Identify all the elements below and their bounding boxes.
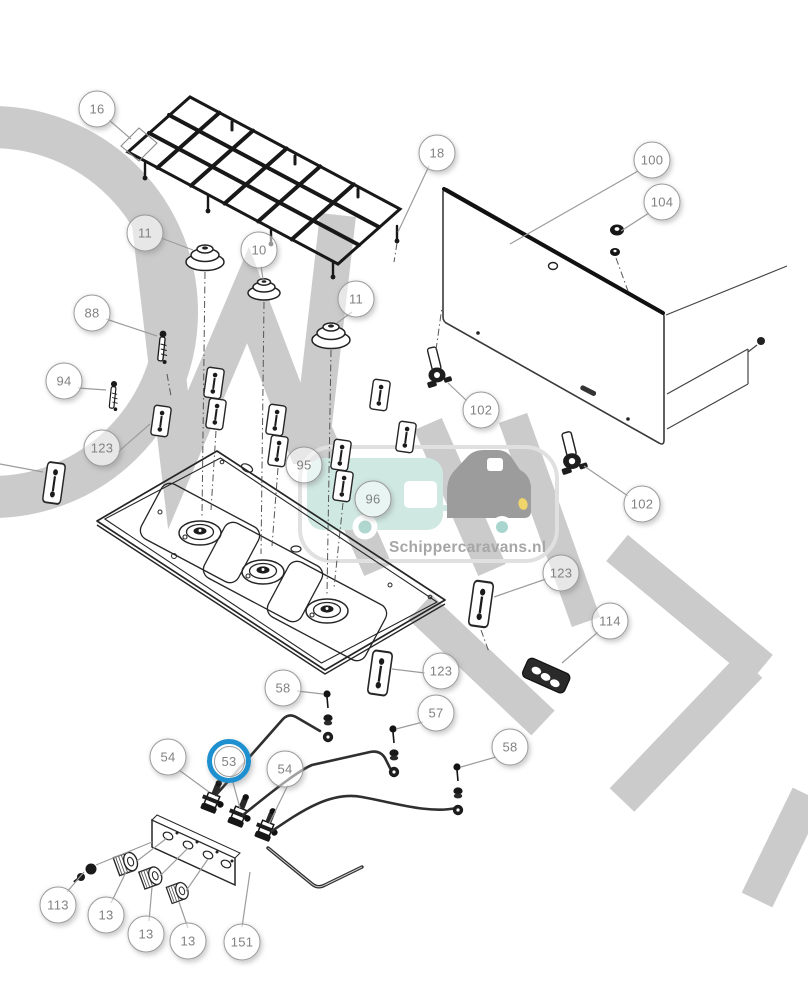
- callout-104[interactable]: 104: [644, 184, 681, 221]
- callout-label: 123: [91, 441, 114, 456]
- callout-label: 58: [502, 740, 517, 755]
- callout-54[interactable]: 54: [150, 739, 187, 776]
- callout-95[interactable]: 95: [286, 447, 323, 484]
- callout-label: 11: [138, 226, 152, 241]
- callout-label: 54: [160, 750, 175, 765]
- callout-label: 95: [296, 458, 311, 473]
- callout-102[interactable]: 102: [624, 486, 661, 523]
- callout-54[interactable]: 54: [267, 751, 304, 788]
- callout-label: 13: [180, 934, 195, 949]
- callout-11[interactable]: 11: [338, 281, 375, 318]
- callout-label: 151: [231, 935, 254, 950]
- callout-13[interactable]: 13: [88, 897, 125, 934]
- callout-label: 53: [221, 754, 236, 769]
- callout-label: 113: [47, 898, 69, 913]
- callout-114[interactable]: 114: [592, 603, 629, 640]
- callout-layer: 1618100104111011889412310210295961231141…: [0, 0, 808, 1000]
- callout-123[interactable]: 123: [84, 430, 121, 467]
- callout-13[interactable]: 13: [128, 916, 165, 953]
- callout-13[interactable]: 13: [170, 923, 207, 960]
- callout-53-highlighted[interactable]: 53: [207, 739, 251, 783]
- callout-113[interactable]: 113: [40, 887, 77, 924]
- callout-label: 16: [89, 102, 104, 117]
- callout-label: 58: [275, 681, 290, 696]
- callout-11[interactable]: 11: [127, 215, 164, 252]
- callout-123[interactable]: 123: [423, 653, 460, 690]
- callout-151[interactable]: 151: [224, 924, 261, 961]
- callout-label: 102: [631, 497, 654, 512]
- callout-label: 88: [84, 306, 99, 321]
- callout-label: 57: [428, 706, 443, 721]
- callout-label: 10: [251, 243, 266, 258]
- callout-57[interactable]: 57: [418, 695, 455, 732]
- callout-label: 100: [641, 153, 664, 168]
- callout-88[interactable]: 88: [74, 295, 111, 332]
- callout-58[interactable]: 58: [492, 729, 529, 766]
- callout-94[interactable]: 94: [46, 363, 83, 400]
- callout-18[interactable]: 18: [419, 135, 456, 172]
- callout-10[interactable]: 10: [241, 232, 278, 269]
- callout-label: 123: [430, 664, 453, 679]
- callout-label: 96: [365, 492, 380, 507]
- callout-123[interactable]: 123: [543, 555, 580, 592]
- callout-58[interactable]: 58: [265, 670, 302, 707]
- callout-label: 102: [470, 403, 493, 418]
- callout-label: 13: [98, 908, 113, 923]
- callout-label: 11: [349, 292, 363, 307]
- callout-label: 54: [277, 762, 292, 777]
- parts-diagram-page: Schippercaravans.nl: [0, 0, 808, 1000]
- callout-label: 13: [138, 927, 153, 942]
- callout-label: 94: [56, 374, 71, 389]
- callout-label: 18: [429, 146, 444, 161]
- callout-label: 123: [550, 566, 573, 581]
- callout-96[interactable]: 96: [355, 481, 392, 518]
- callout-16[interactable]: 16: [79, 91, 116, 128]
- callout-102[interactable]: 102: [463, 392, 500, 429]
- callout-100[interactable]: 100: [634, 142, 671, 179]
- callout-label: 104: [651, 195, 674, 210]
- callout-label: 114: [599, 614, 621, 629]
